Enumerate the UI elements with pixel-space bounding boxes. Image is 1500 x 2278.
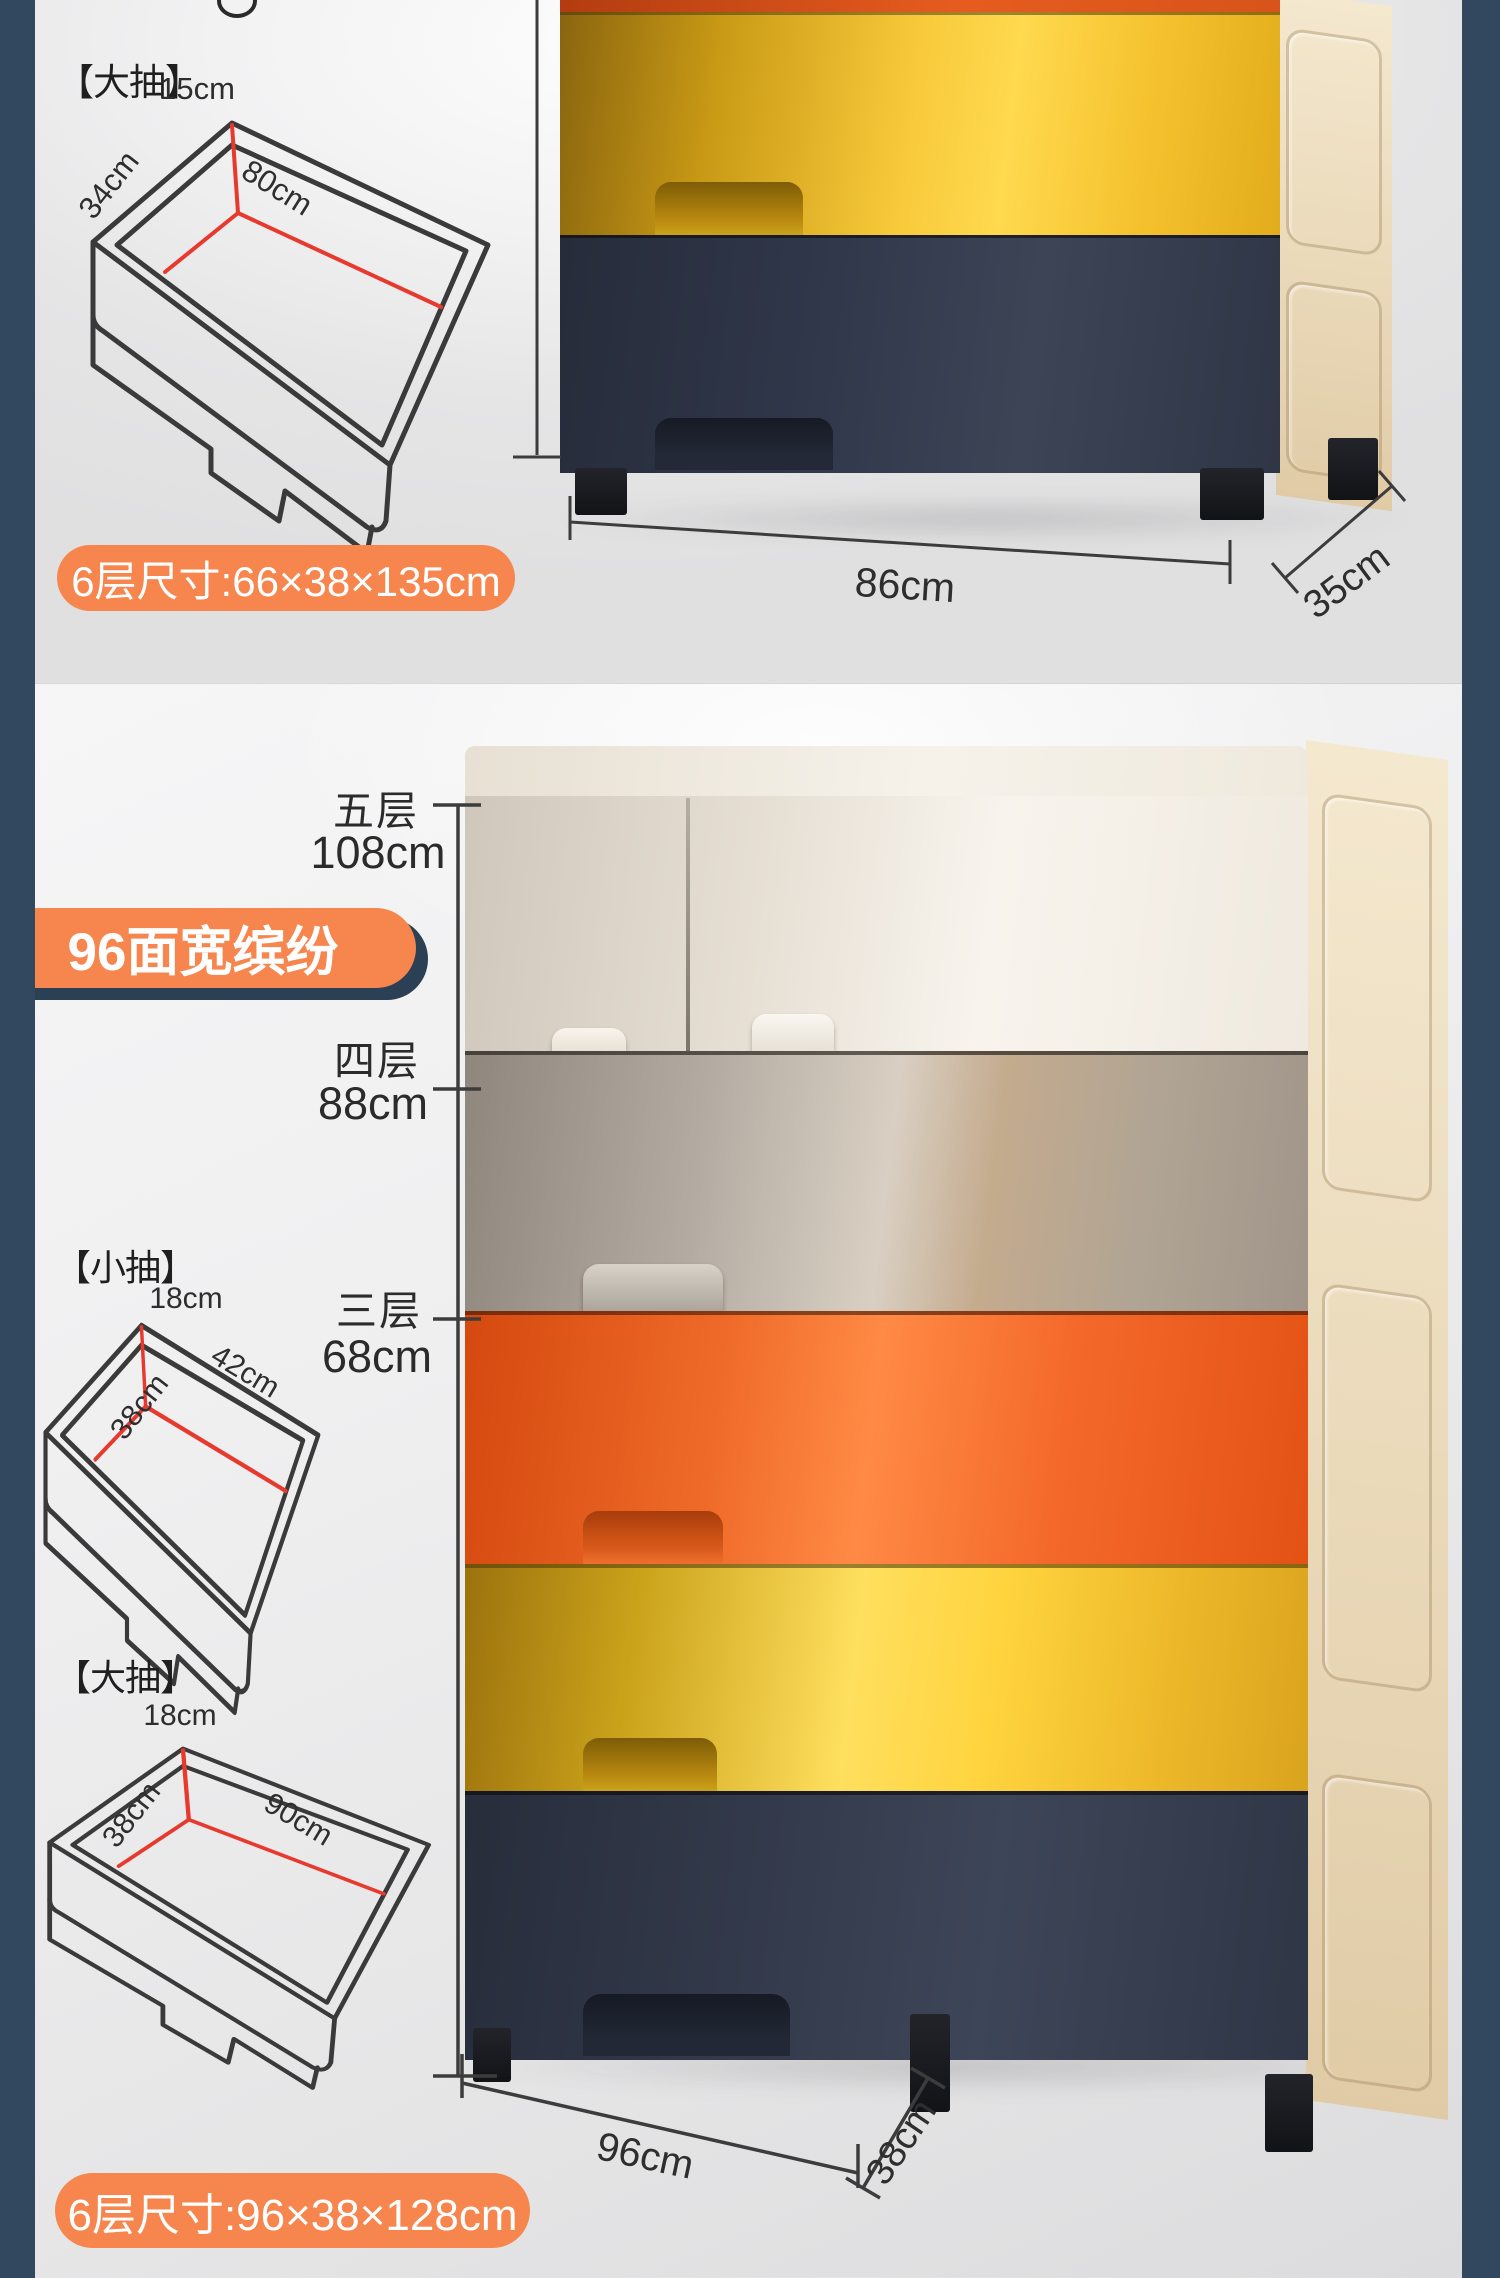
cabinet-width-label: 86cm — [844, 558, 967, 612]
top-section-card: 【大抽】 15cm 34cm 80cm 6层尺寸:66×38×135cm — [35, 0, 1462, 683]
size-badge-bottom: 6层尺寸:96×38×128cm — [55, 2173, 530, 2248]
dimension-lines-top — [35, 0, 1462, 683]
size-badge-bottom-text: 6层尺寸:96×38×128cm — [67, 2179, 517, 2243]
dimension-lines-bottom — [35, 684, 1462, 2278]
bottom-section-card: 96面宽缤纷 五层 108cm 四层 88cm 三层 68cm 【小抽】 18c… — [35, 683, 1462, 2278]
page: { "page": { "background_color": "#32485e… — [0, 0, 1500, 2277]
